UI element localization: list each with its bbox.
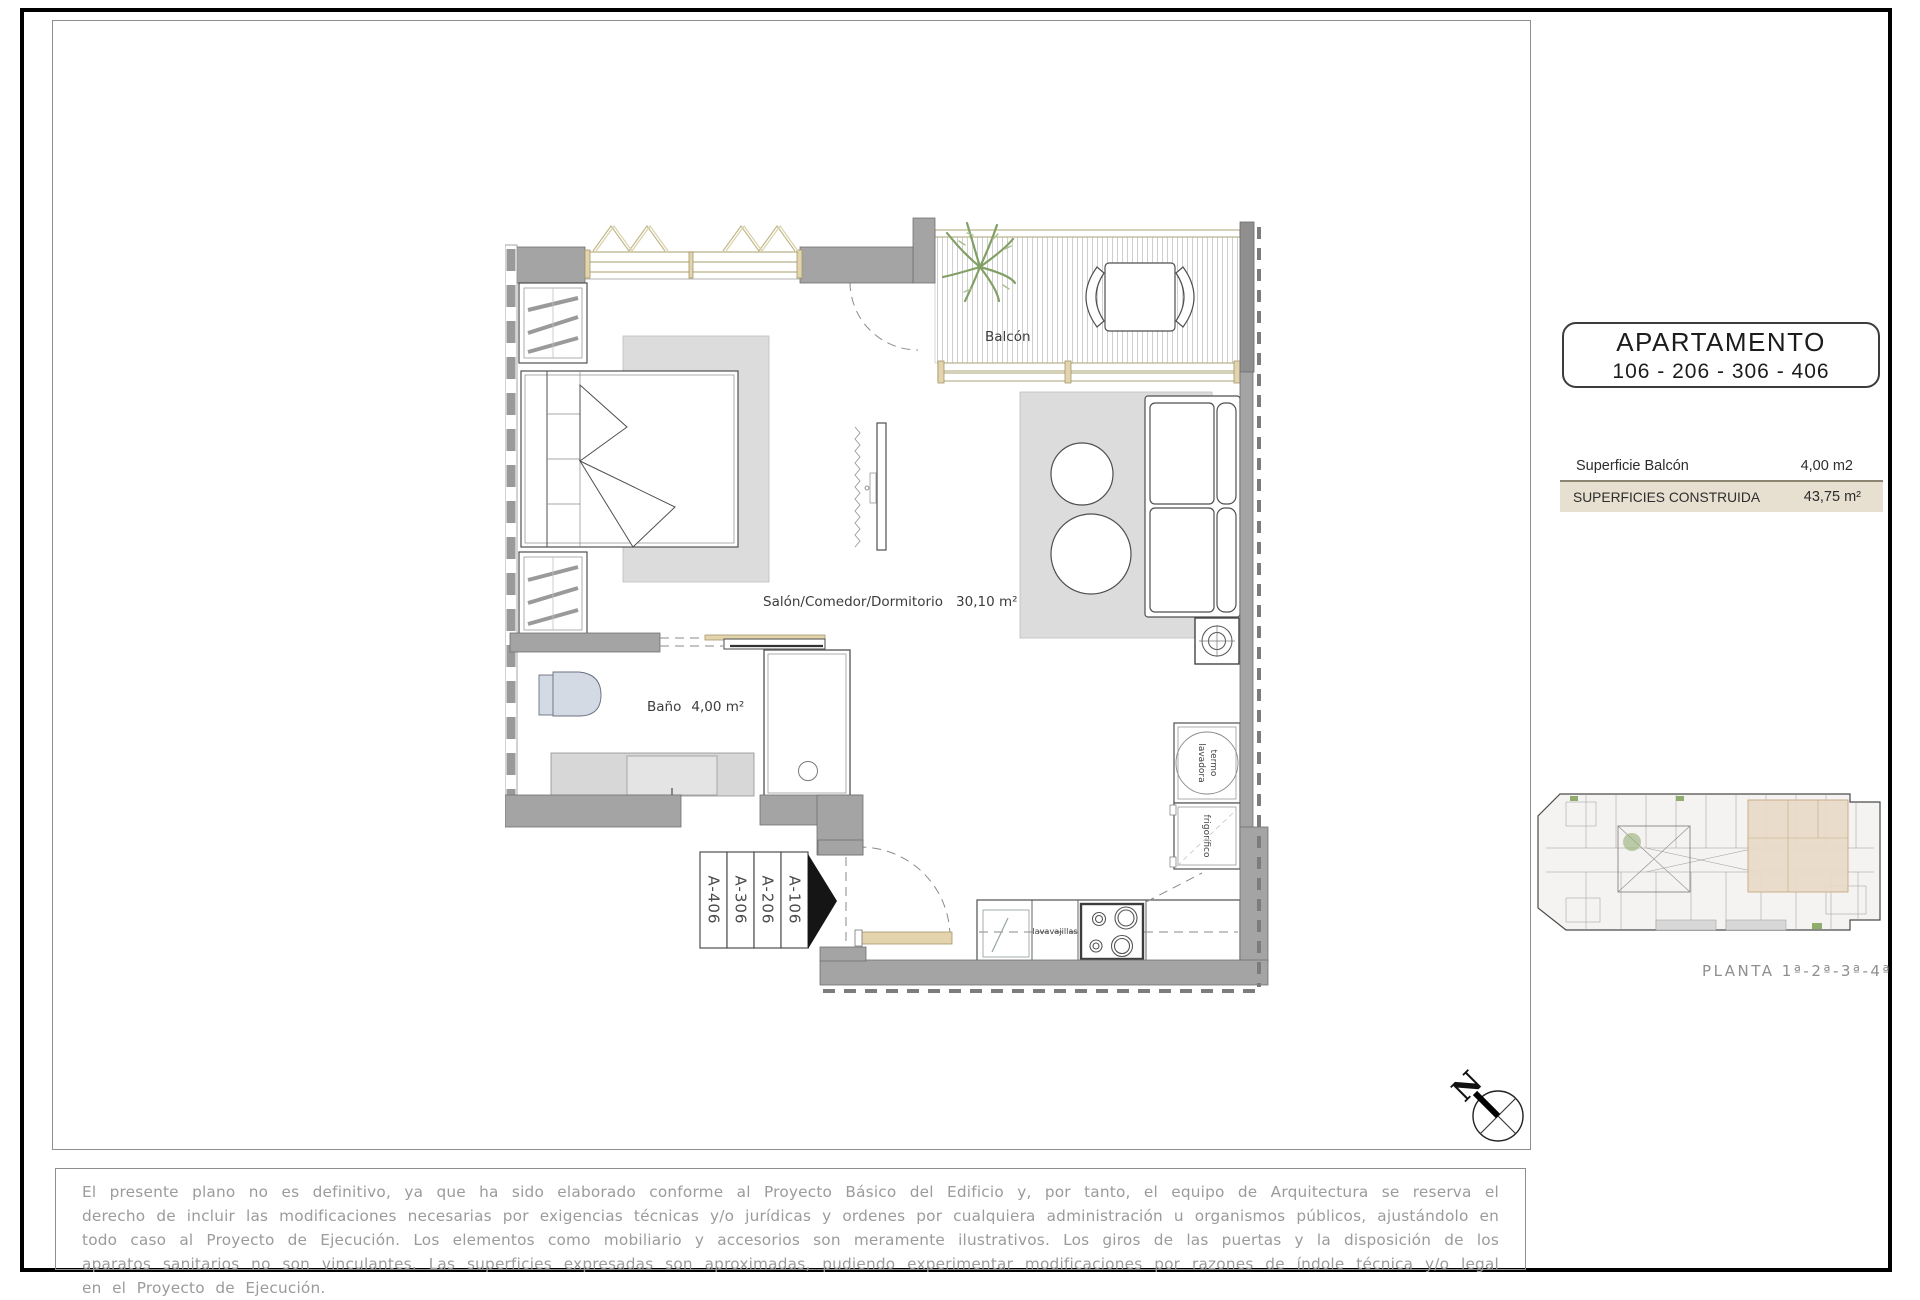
fridge-label: frigorífico bbox=[1201, 815, 1211, 858]
apartment-title: APARTAMENTO bbox=[1616, 327, 1826, 358]
wardrobe bbox=[519, 552, 587, 635]
built-area-label: SUPERFICIES CONSTRUIDA bbox=[1573, 490, 1760, 505]
unit-tags: A-406 A-306 A-206 A-106 bbox=[700, 852, 837, 949]
table-row: Superficie Balcón 4,00 m2 bbox=[1560, 452, 1883, 480]
unit-tag: A-406 bbox=[705, 876, 723, 925]
kitchen: lavavajillas bbox=[977, 873, 1240, 963]
living-area bbox=[1020, 392, 1240, 664]
balcony-area-value: 4,00 m2 bbox=[1801, 458, 1853, 474]
fridge: frigorífico bbox=[1170, 803, 1240, 869]
bathroom: Baño4,00 m² bbox=[505, 633, 863, 855]
heater-label: termo bbox=[1208, 750, 1218, 777]
built-area-value: 43,75 m² bbox=[1804, 489, 1861, 505]
key-plan bbox=[1526, 786, 1894, 962]
washer-label: lavadora bbox=[1196, 743, 1206, 782]
disclaimer-text: El presente plano no es definitivo, ya q… bbox=[82, 1180, 1499, 1300]
key-plan-caption: PLANTA 1ª-2ª-3ª-4ª bbox=[1700, 962, 1892, 980]
highlighted-unit bbox=[1748, 800, 1848, 892]
disclaimer-box: El presente plano no es definitivo, ya q… bbox=[55, 1168, 1526, 1270]
appliances: termo lavadora frigorífico bbox=[1170, 723, 1240, 869]
curtain-icon bbox=[593, 226, 798, 251]
coffee-table bbox=[1051, 514, 1131, 594]
living-label: Salón/Comedor/Dormitorio30,10 m² bbox=[763, 594, 1018, 610]
unit-tag: A-206 bbox=[759, 876, 777, 925]
balcony-wall bbox=[1240, 222, 1254, 372]
entrance-door bbox=[846, 847, 952, 953]
balcony-area-label: Superficie Balcón bbox=[1576, 458, 1689, 474]
bed bbox=[521, 336, 769, 582]
hob-icon bbox=[1081, 904, 1143, 959]
north-arrow: N bbox=[1438, 1056, 1538, 1152]
unit-tag: A-106 bbox=[786, 876, 804, 925]
washer-heater: termo lavadora bbox=[1174, 723, 1240, 803]
dishwasher-label: lavavajillas bbox=[1032, 926, 1077, 936]
balcony: Balcón bbox=[850, 218, 1254, 383]
ac-unit bbox=[1195, 618, 1239, 664]
party-wall bbox=[505, 245, 517, 797]
floor-plan: Balcón bbox=[505, 205, 1270, 995]
toilet-icon bbox=[539, 672, 601, 716]
title-block: APARTAMENTO 106 - 206 - 306 - 406 bbox=[1562, 322, 1880, 388]
bath-label: Baño4,00 m² bbox=[647, 699, 744, 715]
area-table: Superficie Balcón 4,00 m2 SUPERFICIES CO… bbox=[1560, 452, 1883, 512]
unit-tag: A-306 bbox=[732, 876, 750, 925]
sliding-door bbox=[724, 639, 825, 649]
shower bbox=[764, 650, 850, 797]
window-wall bbox=[510, 226, 913, 283]
tv-panel bbox=[855, 423, 886, 550]
wardrobe bbox=[519, 283, 587, 363]
entrance-arrow-icon bbox=[808, 854, 837, 949]
apartment-numbers: 106 - 206 - 306 - 406 bbox=[1612, 360, 1829, 384]
table-row: SUPERFICIES CONSTRUIDA 43,75 m² bbox=[1560, 480, 1883, 512]
balcony-door-swing bbox=[850, 282, 918, 350]
sofa bbox=[1145, 396, 1240, 617]
balcony-label: Balcón bbox=[985, 329, 1031, 345]
coffee-table bbox=[1051, 443, 1113, 505]
window bbox=[583, 250, 803, 279]
